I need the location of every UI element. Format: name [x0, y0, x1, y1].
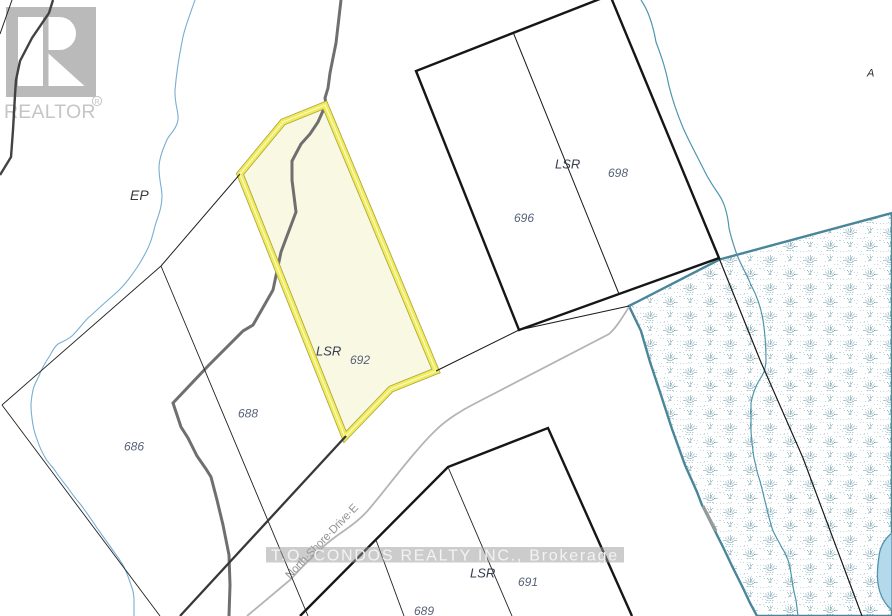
svg-text:698: 698 — [608, 166, 628, 180]
svg-text:696: 696 — [514, 211, 534, 225]
svg-text:EP: EP — [130, 187, 149, 203]
svg-text:T.O. CONDOS REALTY INC., Broke: T.O. CONDOS REALTY INC., Brokerage — [271, 548, 619, 565]
svg-text:LSR: LSR — [316, 344, 341, 359]
svg-text:688: 688 — [238, 407, 258, 421]
svg-text:686: 686 — [124, 440, 144, 454]
svg-text:LSR: LSR — [555, 157, 580, 172]
svg-text:A: A — [866, 68, 874, 80]
svg-text:R: R — [95, 99, 100, 106]
svg-text:LSR: LSR — [470, 566, 495, 581]
svg-text:692: 692 — [350, 353, 370, 367]
svg-text:REALTOR: REALTOR — [4, 101, 96, 123]
svg-text:691: 691 — [518, 575, 538, 589]
svg-text:689: 689 — [414, 604, 434, 616]
